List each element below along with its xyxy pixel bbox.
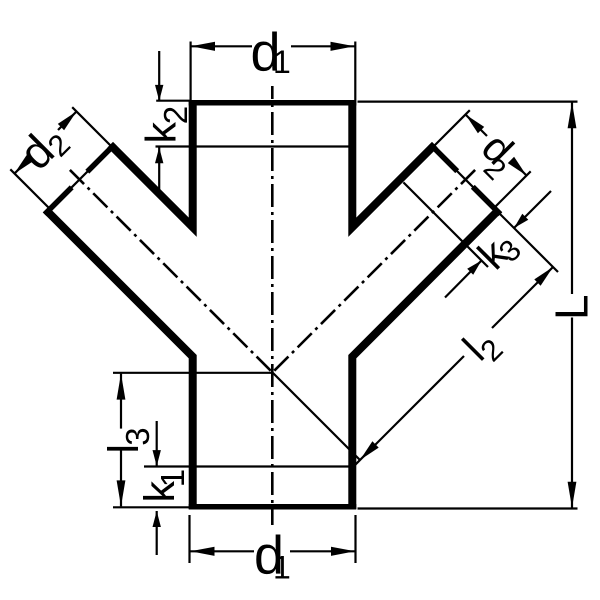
svg-text:3: 3 (119, 427, 156, 445)
svg-text:L: L (546, 294, 598, 320)
svg-text:1: 1 (154, 469, 191, 487)
svg-text:1: 1 (273, 549, 291, 585)
svg-text:2: 2 (157, 106, 194, 124)
svg-text:1: 1 (273, 44, 291, 80)
